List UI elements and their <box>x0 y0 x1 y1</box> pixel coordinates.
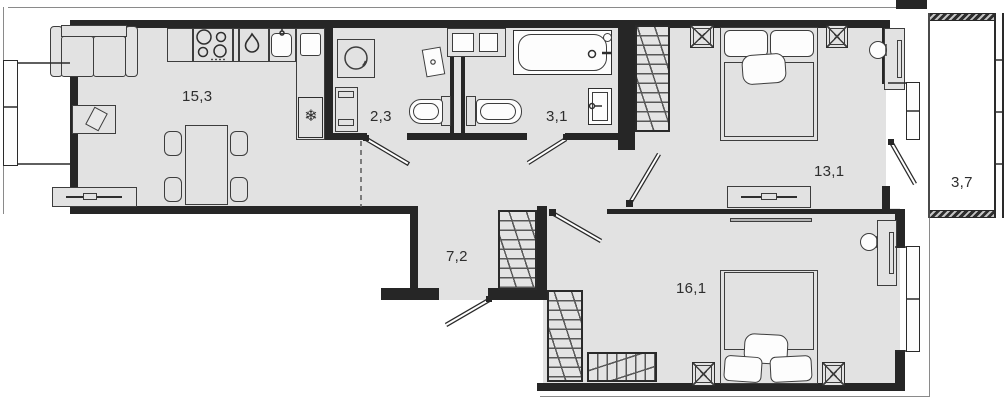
nightstand <box>690 25 714 48</box>
room-label-hallway: 7,2 <box>446 248 468 265</box>
wall-kitchen-wc <box>325 20 333 140</box>
toilet-tank-bath <box>466 96 476 126</box>
wall-bedrooms-divider <box>607 209 905 214</box>
wall-bedroom1-right-lower <box>882 186 890 214</box>
fridge-glyph: ❄ <box>304 108 317 125</box>
wall-stub-top-right <box>896 0 927 9</box>
wardrobe-bedroom-2-left <box>547 290 583 382</box>
mirror-bedroom-2 <box>889 232 894 274</box>
room-label-balcony: 3,7 <box>951 174 973 191</box>
wall-bath-south <box>565 133 620 140</box>
sofa-seat-cushion <box>93 36 126 77</box>
tv-bedroom-2 <box>730 218 812 222</box>
counter-divider <box>238 28 240 62</box>
counter-divider <box>232 28 234 62</box>
door-balcony <box>888 139 915 184</box>
wall-wc-south-a <box>318 133 367 140</box>
fridge-top-shelf <box>300 33 321 56</box>
shaft-cabinet-box <box>452 33 474 52</box>
wardrobe-corridor <box>498 210 537 290</box>
wall-corridor-left <box>410 206 418 300</box>
chair-bedroom-2 <box>860 233 878 251</box>
room-label-bathroom: 3,1 <box>546 108 568 125</box>
bed-1-pillow <box>724 30 768 57</box>
desk-bedroom-2 <box>877 220 897 286</box>
bath-sink-inner <box>592 92 608 121</box>
room-label-wc: 2,3 <box>370 108 392 125</box>
window-bedroom-1 <box>906 82 920 140</box>
wardrobe-bedroom-2-bottom <box>587 352 657 382</box>
wc-cabinet-shelf <box>338 91 354 98</box>
toilet-bowl-wc-inner <box>413 103 439 120</box>
dining-table <box>185 125 228 205</box>
dining-chair <box>164 177 182 202</box>
dining-chair <box>230 177 248 202</box>
door-entry <box>446 296 492 325</box>
exterior-line-left-lower <box>3 166 4 214</box>
balcony-glazing <box>994 13 1004 218</box>
wardrobe-bedroom-1 <box>635 25 670 132</box>
nightstand <box>692 362 715 386</box>
balcony-wall-top <box>928 13 1004 21</box>
nightstand <box>822 362 845 386</box>
tv-bedroom-1-base <box>761 193 777 200</box>
exterior-line-bottom <box>540 396 930 397</box>
wall-bedroom2-right-lower <box>895 350 905 391</box>
dining-chair <box>230 131 248 156</box>
washing-machine <box>337 39 375 78</box>
nightstand <box>826 25 848 48</box>
bathtub-inner <box>518 34 607 71</box>
room-label-bedroom-2: 16,1 <box>676 280 706 297</box>
wall-bedroom2-bottom <box>537 383 905 391</box>
tv-living-base <box>83 193 97 200</box>
bed-1-big-pillow <box>741 53 787 86</box>
mirror-bedroom-1 <box>897 40 902 78</box>
balcony-inner-edge <box>928 13 930 218</box>
fridge-snowflake-icon: ❄ <box>300 106 322 128</box>
wall-entry-a <box>381 288 439 300</box>
window-living <box>3 60 18 166</box>
counter-divider <box>268 28 270 62</box>
wall-wc-south-b <box>407 133 527 140</box>
wc-cabinet-shelf <box>338 119 354 126</box>
shaft-cabinet-box <box>479 33 498 52</box>
balcony-wall-bottom <box>928 210 1004 218</box>
exterior-line-top <box>8 7 896 8</box>
wall-living-bottom <box>70 206 418 214</box>
toilet-bowl-bath-inner <box>480 103 516 120</box>
wall-bath-bedroom1 <box>618 20 635 150</box>
room-label-bedroom-1: 13,1 <box>814 163 844 180</box>
wall-plumbing-right <box>461 53 465 133</box>
dining-chair <box>164 131 182 156</box>
chair-bedroom-1 <box>869 41 887 59</box>
bathtub-knob <box>603 33 612 42</box>
sofa-seat-cushion <box>61 36 94 77</box>
bed-2-pillow <box>723 355 763 384</box>
exterior-line-left-upper <box>3 7 4 60</box>
bed-2-pillow <box>769 355 812 383</box>
exterior-line-right <box>929 218 930 396</box>
room-label-living-kitchen: 15,3 <box>182 88 212 105</box>
floor-plan: ❄ <box>0 0 1008 400</box>
window-bedroom-2 <box>906 246 920 352</box>
wall-corridor-right <box>537 206 547 300</box>
counter-divider <box>192 28 194 62</box>
kitchen-sink <box>271 33 292 57</box>
